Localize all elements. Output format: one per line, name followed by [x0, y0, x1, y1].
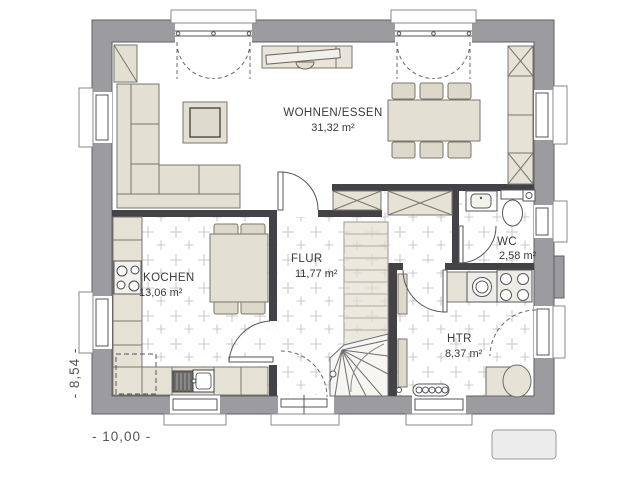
floor-plan-canvas: WOHNEN/ESSEN 31,32 m² KOCHEN 13,06 m² FL…: [0, 0, 640, 480]
floor-drain: [397, 388, 402, 393]
washbasin-drain: [480, 197, 482, 199]
wall-kitchen-hall-upper: [269, 210, 277, 321]
doormat-pad: [492, 430, 556, 459]
window-bottom1-frame: [173, 399, 217, 410]
wall-hall-top-left: [318, 210, 382, 217]
dining-chair: [392, 142, 415, 158]
kitchen-table: [210, 234, 268, 302]
wall-htr-door-stub-right: [445, 263, 452, 270]
dining-chair: [392, 83, 415, 99]
wall-wc-htr: [452, 263, 534, 270]
htr-cabinet: [447, 272, 467, 302]
room-area-wohnen-essen: 31,32 m²: [311, 122, 355, 134]
duct-box: [523, 190, 535, 201]
toilet-tank: [501, 190, 524, 199]
sill-window-right2: [553, 201, 567, 242]
window-bottom2-frame: [415, 399, 463, 410]
wall-kitchen-hall-lower: [269, 365, 277, 396]
wall-stairs-htr: [388, 263, 397, 396]
chimney-block: [554, 256, 564, 298]
wc-door-leaf: [459, 226, 463, 263]
room-label-kochen: KOCHEN: [143, 272, 195, 284]
toilet-bowl: [503, 200, 523, 226]
room-label-wohnen-essen: WOHNEN/ESSEN: [283, 107, 382, 119]
coffee-table-top: [190, 108, 220, 137]
sill-patio-a: [171, 10, 256, 23]
dimension-height: - 8,54 -: [67, 348, 82, 399]
sink-basin-bowl: [196, 373, 211, 389]
window-right2-frame: [536, 208, 548, 235]
dining-chair: [420, 142, 443, 158]
dining-chair: [448, 83, 471, 99]
radiator-panel-1: [398, 274, 407, 314]
patio-door-b-swing: [397, 42, 470, 79]
wall-kitchen-living: [112, 210, 277, 217]
living-door-leaf: [278, 172, 283, 210]
sill-window-left2: [79, 292, 93, 353]
wall-hall-wc: [452, 191, 459, 270]
room-area-flur: 11,77 m²: [295, 268, 338, 280]
stair-upper-flight-hatch: [344, 222, 388, 345]
sill-window-bottom2: [406, 414, 472, 425]
room-label-htr: HTR: [447, 333, 472, 345]
sill-window-right1: [553, 86, 567, 144]
window-left1-frame: [96, 95, 108, 140]
sill-entrance: [271, 414, 339, 425]
doormat: [492, 430, 556, 459]
room-area-kochen: 13,06 m²: [139, 287, 183, 299]
washbasin-bowl: [471, 194, 491, 208]
dining-chair: [448, 142, 471, 158]
wall-htr-door-stub-left: [397, 263, 403, 270]
boiler-drum: [503, 365, 531, 397]
dining-table: [388, 100, 480, 141]
room-area-wc: 2,58 m²: [499, 250, 537, 262]
sink-faucet: [192, 379, 196, 383]
sill-side-door: [553, 306, 565, 358]
sill-patio-b: [391, 10, 476, 23]
window-right1-frame: [536, 93, 548, 137]
dimension-width: - 10,00 -: [92, 429, 151, 444]
patio-door-a-swing: [177, 42, 250, 79]
room-area-htr: 8,37 m²: [445, 348, 483, 360]
dining-chair: [420, 83, 443, 99]
stair-newel-post: [330, 371, 336, 377]
kitchen-door-leaf: [229, 357, 273, 362]
sink-drainer: [173, 371, 193, 392]
floor-plan: WOHNEN/ESSEN 31,32 m² KOCHEN 13,06 m² FL…: [0, 0, 640, 480]
room-label-flur: FLUR: [291, 253, 323, 265]
sill-window-bottom1: [164, 414, 226, 425]
side-door-panel: [537, 309, 549, 355]
sill-window-left1: [79, 88, 93, 147]
room-label-wc: WC: [497, 236, 517, 248]
living-door-swing: [281, 172, 318, 210]
htr-door-leaf: [443, 270, 447, 312]
window-left2-frame: [96, 299, 108, 346]
radiator-panel-2: [398, 339, 407, 387]
